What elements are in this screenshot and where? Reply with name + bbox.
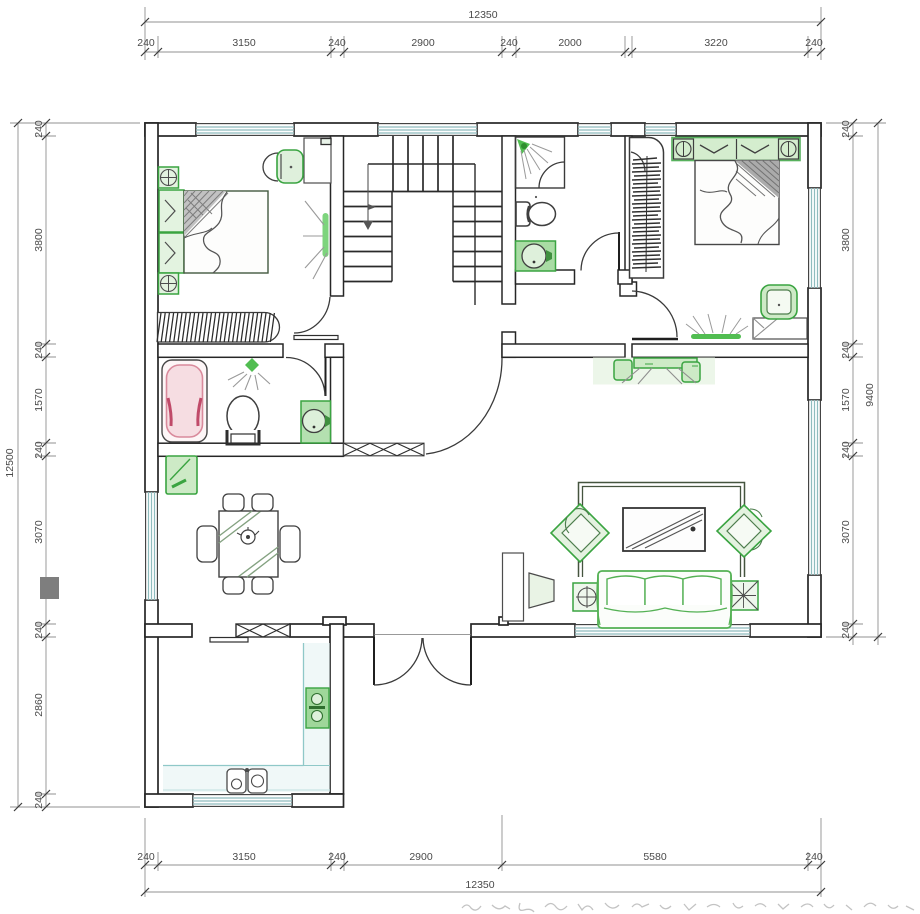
svg-text:240: 240 <box>500 37 518 49</box>
svg-text:240: 240 <box>805 37 823 49</box>
svg-text:3150: 3150 <box>232 37 256 49</box>
svg-text:2860: 2860 <box>33 693 45 717</box>
svg-text:1570: 1570 <box>33 388 45 412</box>
svg-text:3070: 3070 <box>840 520 852 544</box>
svg-text:2000: 2000 <box>558 37 582 49</box>
svg-text:240: 240 <box>805 851 823 863</box>
svg-text:3220: 3220 <box>704 37 728 49</box>
svg-text:2900: 2900 <box>411 37 435 49</box>
svg-text:240: 240 <box>33 341 45 359</box>
svg-text:240: 240 <box>328 37 346 49</box>
svg-text:1570: 1570 <box>840 388 852 412</box>
svg-text:240: 240 <box>840 341 852 359</box>
svg-text:9400: 9400 <box>864 383 876 407</box>
svg-text:240: 240 <box>33 621 45 639</box>
svg-text:240: 240 <box>137 851 155 863</box>
svg-text:3800: 3800 <box>33 228 45 252</box>
svg-text:12350: 12350 <box>468 9 497 21</box>
svg-text:3070: 3070 <box>33 520 45 544</box>
svg-text:240: 240 <box>33 441 45 459</box>
svg-text:12350: 12350 <box>465 879 494 891</box>
svg-text:240: 240 <box>328 851 346 863</box>
svg-text:240: 240 <box>33 120 45 138</box>
svg-text:12500: 12500 <box>4 448 16 477</box>
svg-text:2900: 2900 <box>409 851 433 863</box>
svg-text:3150: 3150 <box>232 851 256 863</box>
svg-text:5580: 5580 <box>643 851 667 863</box>
svg-text:240: 240 <box>33 791 45 809</box>
svg-text:3800: 3800 <box>840 228 852 252</box>
svg-text:240: 240 <box>137 37 155 49</box>
svg-text:240: 240 <box>840 120 852 138</box>
svg-text:240: 240 <box>840 621 852 639</box>
svg-text:240: 240 <box>840 441 852 459</box>
